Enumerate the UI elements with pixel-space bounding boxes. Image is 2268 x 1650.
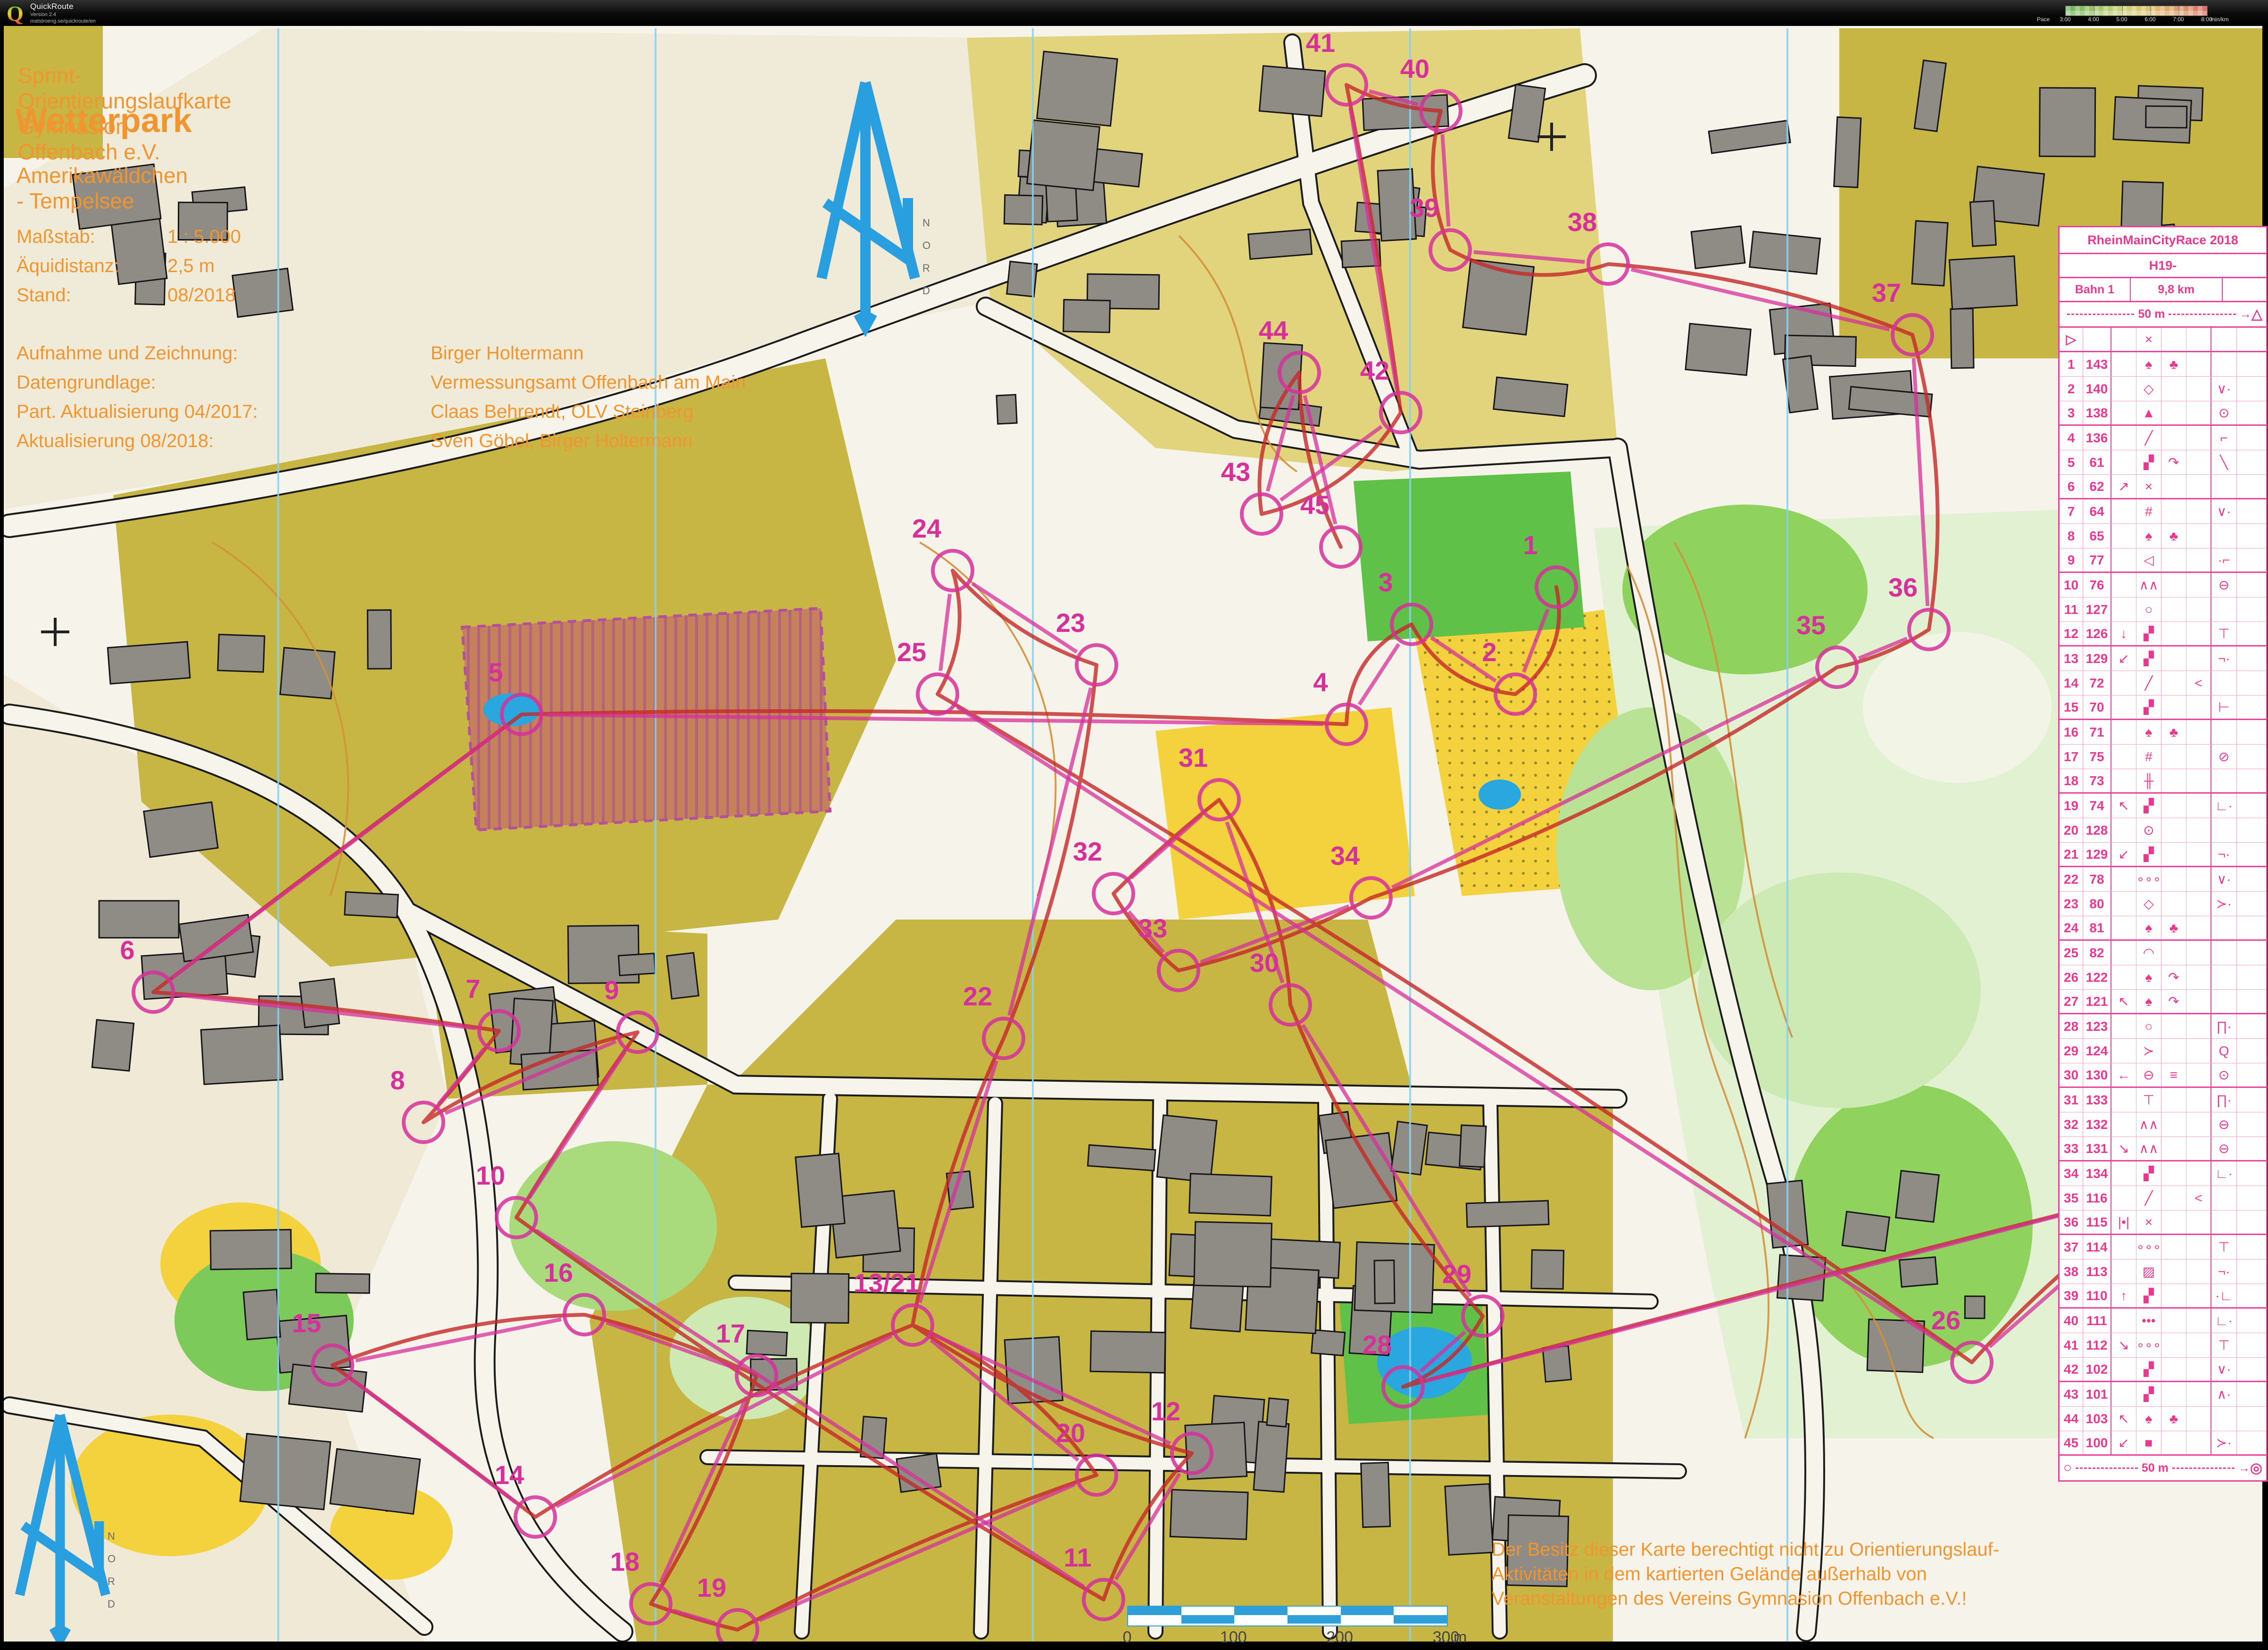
credit-value: Birger Holtermann (431, 343, 584, 364)
cell-appearance: ↷ (2161, 990, 2186, 1013)
cell-code: 72 (2083, 671, 2111, 695)
app-version: Version 2.4 (30, 12, 56, 17)
cell-which: ↙ (2111, 647, 2136, 671)
cell-which (2111, 1088, 2136, 1112)
cell-which (2111, 401, 2136, 424)
map-paper[interactable]: 4140393837444243451336242335252543132343… (4, 26, 2262, 1642)
credit-label: Maßstab: (17, 226, 95, 247)
cell-dimensions (2186, 1284, 2211, 1307)
cell-dimensions (2186, 892, 2211, 916)
map-control-number: 19 (697, 1573, 726, 1602)
cell-code: 131 (2083, 1137, 2111, 1160)
cell-appearance (2161, 328, 2186, 351)
cell-code: 123 (2083, 1014, 2111, 1038)
cell-location: ∏· (2211, 1088, 2237, 1112)
cell-which (2111, 720, 2136, 744)
cell-number: 35 (2060, 1186, 2083, 1210)
cell-appearance: ♣ (2161, 352, 2186, 376)
cell-other (2237, 965, 2266, 989)
cell-feature: # (2136, 499, 2161, 523)
cell-location: ╲ (2211, 450, 2237, 474)
cell-code: 136 (2083, 426, 2111, 450)
cell-number: 44 (2060, 1407, 2083, 1431)
cell-other (2237, 597, 2266, 622)
cell-appearance (2161, 597, 2186, 622)
card-row: 2140◇∨· (2060, 377, 2266, 401)
credit-label: Stand: (17, 285, 71, 306)
map-title: Wetterpark (15, 101, 192, 140)
cell-code: 143 (2083, 352, 2111, 376)
credit-label: Aktualisierung 08/2018: (17, 431, 214, 451)
cell-dimensions (2186, 818, 2211, 842)
card-row: 35116╱< (2060, 1186, 2266, 1211)
cell-number: 8 (2060, 524, 2083, 548)
cell-location: ⊤ (2211, 1333, 2237, 1357)
card-row: 40111•••∟· (2060, 1309, 2266, 1333)
cell-location: ∨· (2211, 499, 2237, 523)
cell-appearance (2161, 696, 2186, 719)
cell-which: ↑ (2111, 1284, 2136, 1307)
pace-legend-unit: min/km (2210, 16, 2229, 23)
cell-number: 5 (2060, 450, 2083, 474)
cell-dimensions (2186, 499, 2211, 523)
cell-feature: ♠ (2136, 965, 2161, 989)
cell-number: ▷ (2060, 328, 2083, 351)
scale-bar: 0100200300 m (1127, 1605, 1457, 1650)
cell-number: 30 (2060, 1063, 2083, 1086)
cell-number: 18 (2060, 769, 2083, 792)
cell-number: 17 (2060, 745, 2083, 769)
cell-dimensions (2186, 1137, 2211, 1160)
card-class: H19- (2060, 254, 2266, 278)
cell-location (2211, 965, 2237, 989)
cell-number: 28 (2060, 1014, 2083, 1038)
cell-dimensions (2186, 794, 2211, 818)
cell-which (2111, 1039, 2136, 1063)
card-row: 33131↘∧∧⊖ (2060, 1137, 2266, 1161)
cell-appearance (2161, 622, 2186, 645)
card-row: 1775#⊘ (2060, 745, 2266, 769)
cell-other (2237, 499, 2266, 523)
cell-which: ↙ (2111, 1431, 2136, 1454)
cell-code: 103 (2083, 1407, 2111, 1431)
card-row: 977◁·⌐ (2060, 548, 2266, 573)
cell-number: 36 (2060, 1211, 2083, 1234)
cell-which: ↖ (2111, 794, 2136, 818)
pace-legend-label: Pace (2037, 16, 2050, 23)
cell-which: ↖ (2111, 990, 2136, 1013)
cell-number: 9 (2060, 548, 2083, 572)
cell-number: 10 (2060, 573, 2083, 597)
cell-location: ⊢ (2211, 696, 2237, 719)
cell-feature: ▨ (2136, 1260, 2161, 1284)
cell-dimensions (2186, 426, 2211, 450)
card-row: 29124≻Q (2060, 1039, 2266, 1063)
cell-which (2111, 965, 2136, 989)
cell-dimensions (2186, 1309, 2211, 1333)
cell-dimensions (2186, 720, 2211, 744)
map-control-number: 41 (1306, 28, 1335, 58)
cell-location: ⊙ (2211, 1063, 2237, 1086)
cell-number: 22 (2060, 867, 2083, 891)
cell-other (2237, 794, 2266, 818)
cell-dimensions (2186, 916, 2211, 939)
cell-number: 26 (2060, 965, 2083, 989)
cell-number: 7 (2060, 499, 2083, 523)
cell-feature: ∘∘∘ (2136, 1235, 2161, 1259)
cell-dimensions (2186, 941, 2211, 965)
cell-dimensions (2186, 597, 2211, 622)
cell-location (2211, 352, 2237, 376)
cell-dimensions (2186, 1112, 2211, 1136)
cell-dimensions (2186, 1407, 2211, 1431)
cell-dimensions (2186, 1161, 2211, 1186)
map-control-number: 30 (1250, 948, 1279, 978)
cell-location (2211, 1186, 2237, 1210)
map-control-number: 4 (1313, 667, 1328, 697)
card-row: 2582◠ (2060, 941, 2266, 965)
cell-which: ↖ (2111, 1407, 2136, 1431)
cell-code: 78 (2083, 867, 2111, 891)
cell-feature: # (2136, 745, 2161, 769)
map-control-number: 35 (1796, 610, 1826, 640)
cell-other (2237, 990, 2266, 1013)
cell-other (2237, 426, 2266, 450)
cell-feature: ▞ (2136, 647, 2161, 671)
cell-dimensions (2186, 1333, 2211, 1357)
card-row: 28123○∏· (2060, 1014, 2266, 1039)
cell-number: 32 (2060, 1112, 2083, 1136)
cell-appearance (2161, 1014, 2186, 1038)
map-control-number: 38 (1568, 207, 1597, 237)
cell-which (2111, 426, 2136, 450)
map-control-number: 37 (1872, 278, 1901, 307)
cell-code: 73 (2083, 769, 2111, 792)
credit-label: Datengrundlage: (17, 372, 156, 393)
card-row: 44103↖♠♣ (2060, 1407, 2266, 1431)
map-control-number: 15 (292, 1308, 321, 1338)
cell-other (2237, 1333, 2266, 1357)
cell-other (2237, 1088, 2266, 1112)
cell-location (2211, 597, 2237, 622)
cell-code: 81 (2083, 916, 2111, 939)
cell-code: 129 (2083, 843, 2111, 866)
cell-location (2211, 941, 2237, 965)
cell-appearance (2161, 1161, 2186, 1186)
cell-dimensions (2186, 867, 2211, 891)
cell-location (2211, 475, 2237, 498)
map-control-number: 23 (1056, 608, 1085, 638)
card-row: 4136╱⌐ (2060, 426, 2266, 450)
cell-which (2111, 548, 2136, 572)
cell-dimensions (2186, 769, 2211, 792)
cell-other (2237, 769, 2266, 792)
card-row: 31133⊤∏· (2060, 1088, 2266, 1112)
cell-which: ↙ (2111, 843, 2136, 866)
cell-which (2111, 450, 2136, 474)
cell-dimensions (2186, 328, 2211, 351)
pace-tick-label: 4:00 (2088, 16, 2099, 23)
cell-number: 42 (2060, 1358, 2083, 1381)
cell-feature: ╱ (2136, 1186, 2161, 1210)
app-title: QuickRoute (30, 2, 74, 11)
cell-other (2237, 1260, 2266, 1284)
quickroute-logo-icon: Q (6, 2, 25, 25)
card-row: 1076∧∧⊖ (2060, 573, 2266, 597)
cell-appearance (2161, 843, 2186, 866)
map-control-number: 28 (1362, 1330, 1392, 1360)
map-control-number: 3 (1378, 567, 1393, 597)
cell-dimensions (2186, 377, 2211, 401)
cell-which (2111, 818, 2136, 842)
cell-other (2237, 1063, 2266, 1086)
map-control-number: 40 (1400, 54, 1429, 83)
cell-code: 62 (2083, 475, 2111, 498)
cell-location: ⊖ (2211, 1112, 2237, 1136)
cell-location: ¬· (2211, 647, 2237, 671)
cell-appearance (2161, 941, 2186, 965)
card-row: 30130←⊖≡⊙ (2060, 1063, 2266, 1088)
card-row: 2380◇≻· (2060, 892, 2266, 916)
map-control-number: 24 (912, 514, 941, 543)
cell-number: 6 (2060, 475, 2083, 498)
cell-code: 74 (2083, 794, 2111, 818)
start-triangle-icon: △ (2251, 306, 2262, 323)
cell-code: 65 (2083, 524, 2111, 548)
cell-dimensions (2186, 1358, 2211, 1381)
cell-code: 113 (2083, 1260, 2111, 1284)
cell-feature: ♠ (2136, 524, 2161, 548)
cell-location: ⊤ (2211, 622, 2237, 645)
credit-value: Claas Behrendt, OLV Steinberg (431, 401, 693, 423)
cell-which (2111, 916, 2136, 939)
card-row: 45100↙■≻· (2060, 1431, 2266, 1456)
map-control-number: 34 (1330, 841, 1360, 871)
cell-dimensions: < (2186, 1186, 2211, 1210)
map-control-number: 12 (1151, 1396, 1180, 1426)
cell-feature: ▞ (2136, 1161, 2161, 1186)
cell-dimensions (2186, 745, 2211, 769)
map-control-number: 11 (1063, 1542, 1091, 1572)
cell-feature: ∘∘∘ (2136, 1333, 2161, 1357)
cell-code: 64 (2083, 499, 2111, 523)
cell-other (2237, 843, 2266, 866)
cell-number: 43 (2060, 1382, 2083, 1406)
cell-code: 129 (2083, 647, 2111, 671)
cell-feature: ♠ (2136, 352, 2161, 376)
cell-other (2237, 1382, 2266, 1406)
cell-other (2237, 1014, 2266, 1038)
card-row: 12126↓▞⊤ (2060, 622, 2266, 647)
map-control-number: 20 (1056, 1418, 1085, 1448)
cell-number: 11 (2060, 597, 2083, 622)
cell-number: 14 (2060, 671, 2083, 695)
cell-other (2237, 1407, 2266, 1431)
cell-feature: ╱ (2136, 671, 2161, 695)
cell-location: ∟· (2211, 1161, 2237, 1186)
scale-bar-graphic (1127, 1606, 1448, 1626)
svg-text:Q: Q (7, 2, 24, 25)
cell-other (2237, 1161, 2266, 1186)
cell-location: ∨· (2211, 377, 2237, 401)
credit-row: Äquidistanz:2,5 m (17, 256, 119, 277)
cell-other (2237, 916, 2266, 939)
cell-feature: ○ (2136, 1014, 2161, 1038)
cell-other (2237, 1112, 2266, 1136)
credit-label: Part. Aktualisierung 04/2017: (17, 401, 258, 422)
cell-which (2111, 1382, 2136, 1406)
cell-which: ↘ (2111, 1137, 2136, 1160)
cell-other (2237, 1137, 2266, 1160)
cell-location: ⌐ (2211, 426, 2237, 450)
cell-feature: × (2136, 1211, 2161, 1234)
cell-feature: ▲ (2136, 401, 2161, 424)
cell-code: 124 (2083, 1039, 2111, 1063)
cell-number: 13 (2060, 647, 2083, 671)
map-control-number: 44 (1259, 315, 1288, 345)
cell-other (2237, 328, 2266, 351)
cell-number: 21 (2060, 843, 2083, 866)
cell-number: 45 (2060, 1431, 2083, 1454)
cell-other (2237, 1358, 2266, 1381)
cell-appearance (2161, 769, 2186, 792)
cell-which (2111, 892, 2136, 916)
card-row: 11127○ (2060, 597, 2266, 622)
cell-location: ∨· (2211, 1358, 2237, 1381)
cell-appearance: ♣ (2161, 524, 2186, 548)
cell-number: 20 (2060, 818, 2083, 842)
cell-feature: ∧∧ (2136, 1137, 2161, 1160)
cell-which (2111, 328, 2136, 351)
cell-appearance (2161, 548, 2186, 572)
cell-number: 34 (2060, 1161, 2083, 1186)
map-control-number: 43 (1221, 457, 1250, 487)
cell-number: 27 (2060, 990, 2083, 1013)
cell-appearance: ♣ (2161, 720, 2186, 744)
cell-number: 23 (2060, 892, 2083, 916)
cell-appearance (2161, 377, 2186, 401)
cell-location: ⊖ (2211, 573, 2237, 597)
cell-appearance (2161, 1088, 2186, 1112)
card-row: 3138▲⊙ (2060, 401, 2266, 426)
cell-feature: ◇ (2136, 892, 2161, 916)
cell-code: 138 (2083, 401, 2111, 424)
cell-dimensions (2186, 573, 2211, 597)
cell-dimensions (2186, 548, 2211, 572)
cell-location: ∏· (2211, 1014, 2237, 1038)
cell-other (2237, 573, 2266, 597)
cell-which (2111, 769, 2136, 792)
cell-feature: ◇ (2136, 377, 2161, 401)
cell-feature: ▞ (2136, 1284, 2161, 1307)
cell-number: 19 (2060, 794, 2083, 818)
cell-dimensions (2186, 524, 2211, 548)
cell-feature: ◁ (2136, 548, 2161, 572)
cell-code: 115 (2083, 1211, 2111, 1234)
cell-dimensions (2186, 1382, 2211, 1406)
cell-other (2237, 352, 2266, 376)
cell-which (2111, 1235, 2136, 1259)
card-row: 1143♠♣ (2060, 352, 2266, 377)
cell-which (2111, 867, 2136, 891)
cell-feature: ╱ (2136, 426, 2161, 450)
cell-other (2237, 548, 2266, 572)
cell-appearance: ♣ (2161, 916, 2186, 939)
cell-feature: ♠ (2136, 990, 2161, 1013)
card-start-distance-row: 50 m → △ (2060, 302, 2266, 328)
cell-code: 80 (2083, 892, 2111, 916)
cell-feature: ≻ (2136, 1039, 2161, 1063)
cell-other (2237, 377, 2266, 401)
credit-label: Aufnahme und Zeichnung: (17, 343, 238, 364)
map-control-number: 22 (963, 981, 992, 1011)
cell-appearance (2161, 1112, 2186, 1136)
cell-which: ↘ (2111, 1333, 2136, 1357)
cell-number: 40 (2060, 1309, 2083, 1333)
pace-tick-label: 7:00 (2173, 16, 2184, 23)
credit-row: Part. Aktualisierung 04/2017:Claas Behre… (17, 401, 258, 423)
titlebar: Q QuickRoute Version 2.4 matstroeng.se/q… (0, 0, 2268, 26)
cell-location: ⊘ (2211, 745, 2237, 769)
cell-appearance (2161, 745, 2186, 769)
cell-feature: ◠ (2136, 941, 2161, 965)
cell-which (2111, 671, 2136, 695)
cell-which (2111, 1186, 2136, 1210)
card-row: 1873╫ (2060, 769, 2266, 794)
cell-appearance: ↷ (2161, 450, 2186, 474)
cell-feature: ■ (2136, 1431, 2161, 1454)
cell-number: 2 (2060, 377, 2083, 401)
cell-code: 128 (2083, 818, 2111, 842)
cell-dimensions (2186, 843, 2211, 866)
cell-appearance: ↷ (2161, 965, 2186, 989)
finish-circle-icon: ◎ (2250, 1460, 2262, 1476)
credit-row: Maßstab:1 : 5.000 (17, 226, 95, 248)
cell-appearance (2161, 818, 2186, 842)
cell-appearance (2161, 1235, 2186, 1259)
cell-other (2237, 1309, 2266, 1333)
cell-dimensions: < (2186, 671, 2211, 695)
cell-location: ∟· (2211, 794, 2237, 818)
cell-code: 126 (2083, 622, 2111, 645)
disclaimer-line: Der Besitz dieser Karte berechtigt nicht… (1492, 1537, 1999, 1562)
map-control-number: 42 (1360, 356, 1389, 385)
card-row: 36115|•|× (2060, 1211, 2266, 1235)
cell-number: 37 (2060, 1235, 2083, 1259)
card-row: 27121↖♠↷ (2060, 990, 2266, 1014)
card-finish-distance-row: ○ 50 m → ◎ (2060, 1456, 2266, 1480)
cell-code: 121 (2083, 990, 2111, 1013)
credit-row: Datengrundlage:Vermessungsamt Offenbach … (17, 372, 156, 393)
start-distance: 50 m (2138, 307, 2165, 321)
cell-number: 15 (2060, 696, 2083, 719)
map-canvas[interactable]: 4140393837444243451336242335252543132343… (4, 26, 2262, 1642)
cell-number: 16 (2060, 720, 2083, 744)
cell-code: 75 (2083, 745, 2111, 769)
cell-feature: ○ (2136, 597, 2161, 622)
cell-which (2111, 941, 2136, 965)
cell-which (2111, 1358, 2136, 1381)
cell-number: 31 (2060, 1088, 2083, 1112)
card-row: 41112↘∘∘∘⊤ (2060, 1333, 2266, 1358)
cell-which (2111, 499, 2136, 523)
map-control-number: 25 (897, 637, 926, 667)
cell-location: ·∟ (2211, 1284, 2237, 1307)
cell-code: 110 (2083, 1284, 2111, 1307)
credit-value: Sven Göbel, Birger Holtermann (431, 431, 693, 452)
cell-code: 61 (2083, 450, 2111, 474)
cell-appearance (2161, 1211, 2186, 1234)
